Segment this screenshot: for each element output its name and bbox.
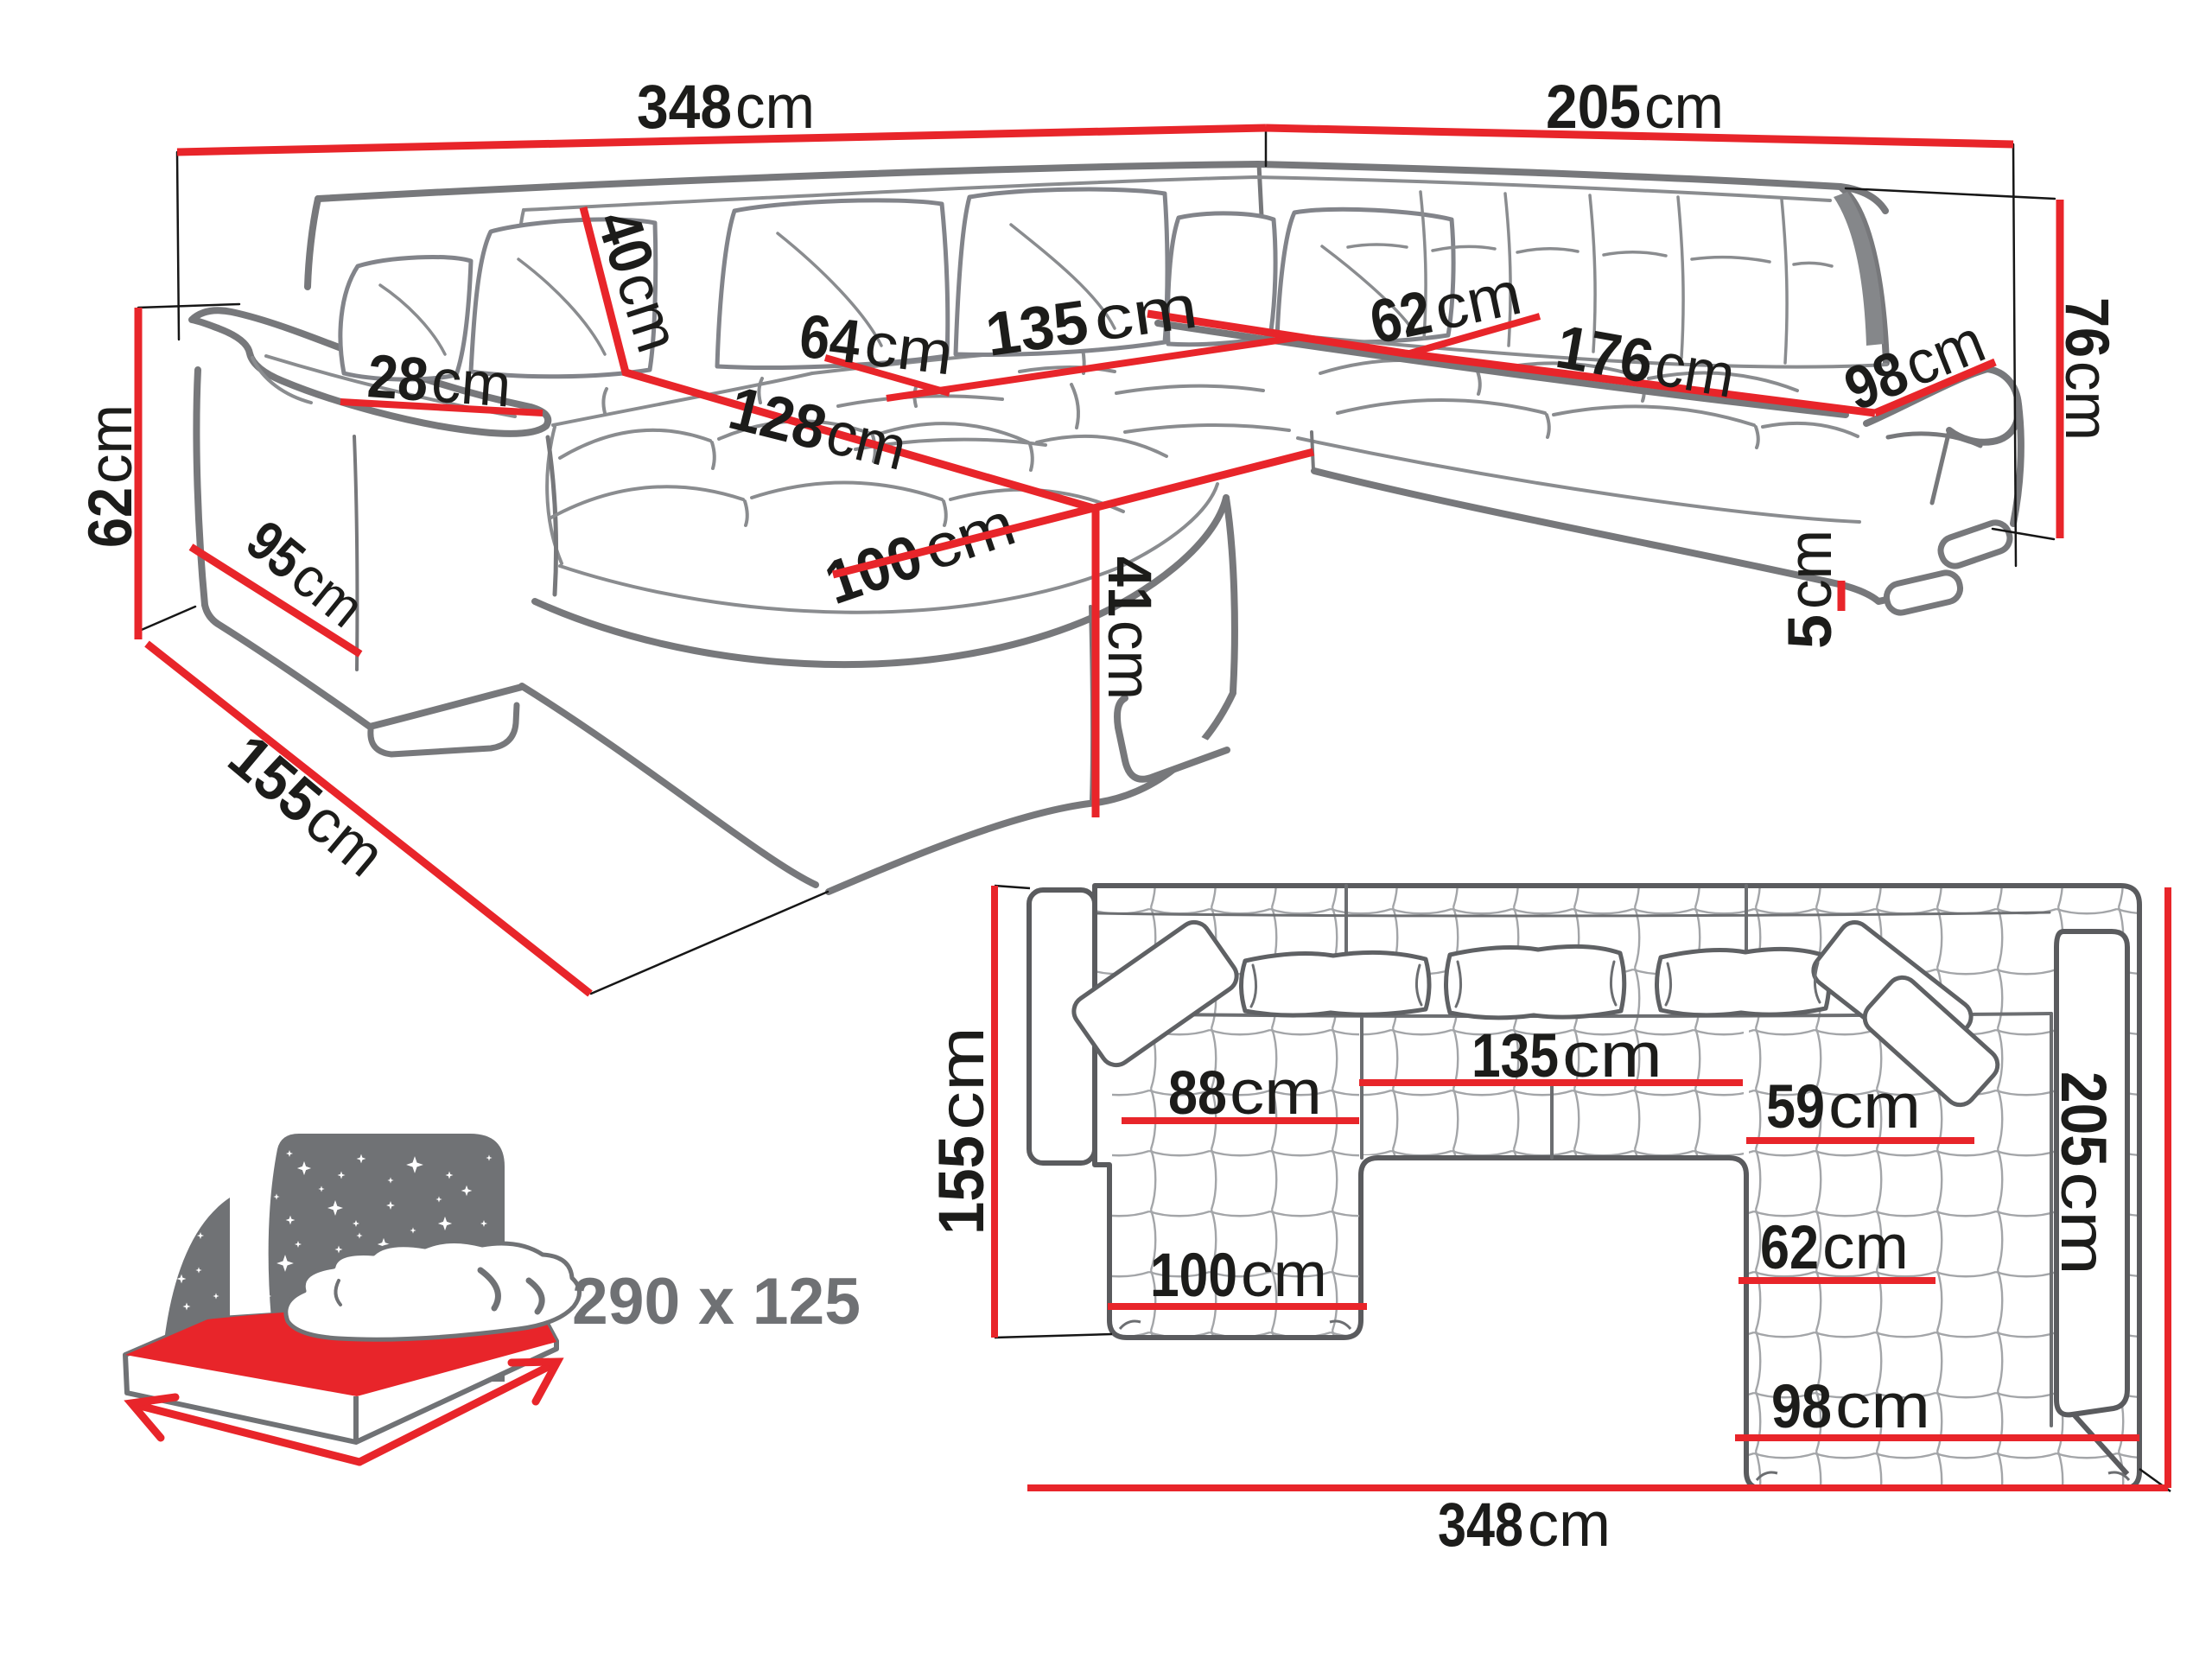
svg-text:cm: cm — [1835, 1371, 1930, 1441]
svg-text:62: 62 — [1760, 1214, 1819, 1282]
svg-text:100: 100 — [1150, 1242, 1237, 1310]
svg-text:62: 62 — [77, 487, 145, 548]
svg-text:41: 41 — [1095, 556, 1163, 617]
svg-text:88: 88 — [1168, 1059, 1227, 1128]
svg-text:64: 64 — [796, 302, 865, 377]
svg-text:135: 135 — [982, 288, 1092, 370]
svg-text:cm: cm — [1822, 1212, 1909, 1282]
svg-text:cm: cm — [1241, 1240, 1327, 1310]
svg-text:cm: cm — [1777, 530, 1845, 609]
svg-text:5: 5 — [1777, 614, 1845, 649]
svg-text:cm: cm — [429, 346, 513, 420]
svg-text:cm: cm — [1230, 1058, 1322, 1128]
svg-text:cm: cm — [1828, 1071, 1921, 1141]
svg-text:cm: cm — [925, 1027, 997, 1130]
svg-text:205: 205 — [1546, 73, 1641, 142]
svg-text:28: 28 — [365, 342, 430, 415]
svg-text:76: 76 — [2052, 297, 2120, 358]
svg-text:98: 98 — [1771, 1373, 1832, 1441]
svg-text:cm: cm — [735, 73, 815, 142]
svg-text:cm: cm — [2052, 361, 2120, 441]
svg-text:cm: cm — [1090, 272, 1202, 354]
svg-text:cm: cm — [861, 310, 957, 389]
svg-text:290 x 125: 290 x 125 — [572, 1265, 861, 1338]
svg-text:cm: cm — [1649, 330, 1739, 411]
svg-text:cm: cm — [1562, 1020, 1662, 1090]
svg-text:155: 155 — [925, 1135, 997, 1235]
svg-text:cm: cm — [1528, 1490, 1611, 1560]
svg-text:205: 205 — [2048, 1071, 2120, 1166]
svg-text:cm: cm — [1095, 620, 1163, 700]
svg-text:cm: cm — [2048, 1172, 2120, 1275]
svg-text:135: 135 — [1471, 1022, 1559, 1090]
svg-text:cm: cm — [77, 404, 145, 484]
svg-text:348: 348 — [1438, 1491, 1523, 1560]
svg-text:348: 348 — [637, 73, 732, 142]
svg-text:cm: cm — [1644, 73, 1724, 142]
svg-text:59: 59 — [1766, 1073, 1825, 1141]
